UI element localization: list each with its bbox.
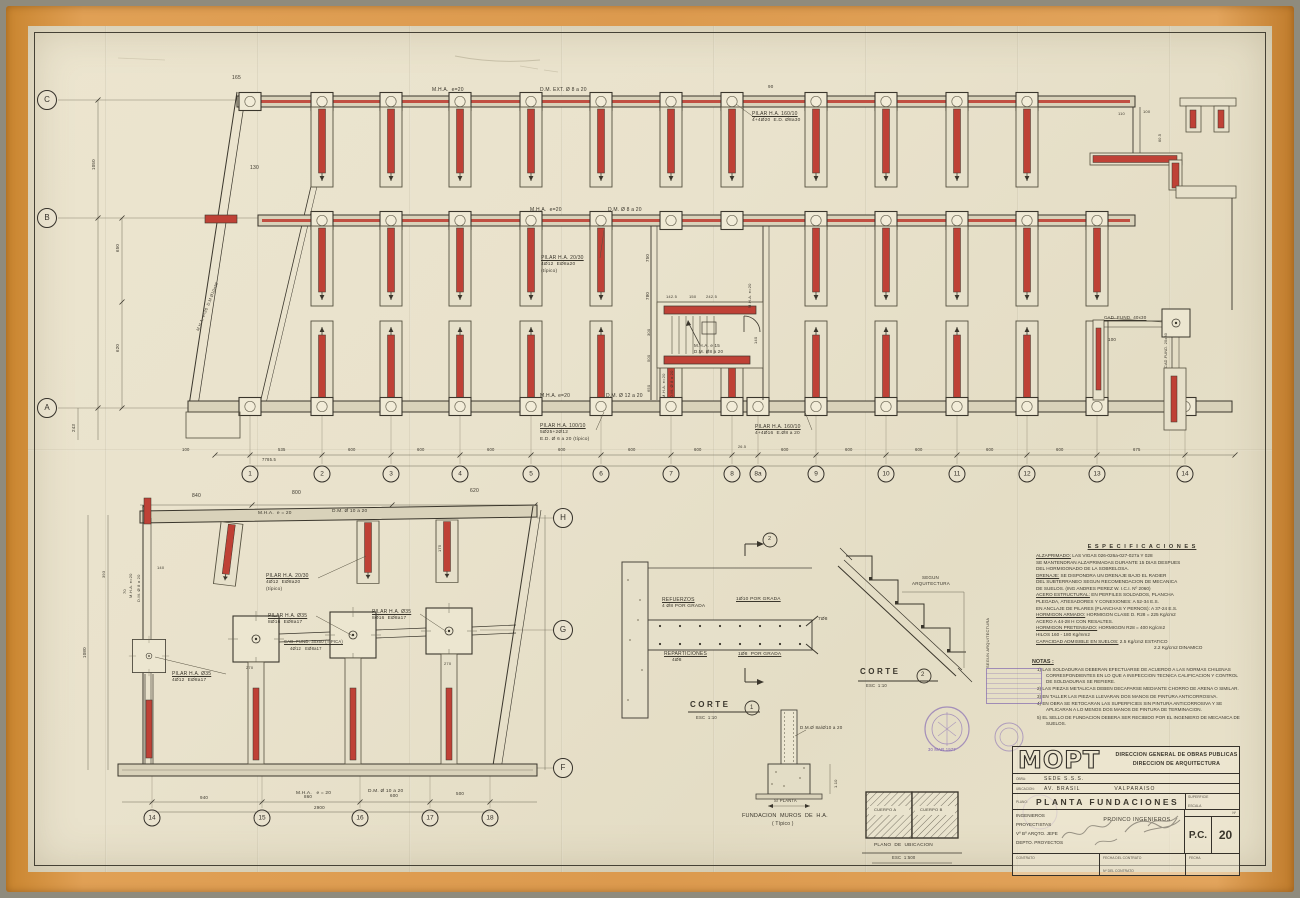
drawing-label: 110 [1118,112,1125,116]
drawing-label: CUERPO A [874,808,896,812]
nota-item: 1) LAS SOLDADURAS DEBERAN EFECTUARSE DE … [1032,667,1244,685]
grid-bubble-13: 13 [1089,466,1106,483]
spec-line: DEL SUBTERRANEO SEGUN RECOMENDACION DE M… [1036,579,1248,586]
drawing-label: PILAR H.A. 100/10 [540,424,586,429]
drawing-label: 600 [390,794,398,799]
right-side-foundations [1090,98,1236,430]
fecha-contrato-label: FECHA DEL CONTRATO [1103,856,1182,860]
drawing-label: M.H.A. e=20 [540,394,570,399]
drawing-label: 650 [647,385,651,392]
drawing-label: PILAR H.A. Ø35 [268,614,307,619]
drawing-label: 26.5 [738,446,746,450]
drawing-label: D.M. Ø 8 a 20 [137,575,141,603]
numero-label: Nº [1185,810,1239,817]
notas-block: NOTAS : 1) LAS SOLDADURAS DEBERAN EFECTU… [1032,659,1244,728]
drawing-label: 860 [304,795,312,800]
drawing-label: 600 [348,448,356,452]
drawing-label: 620 [470,489,479,494]
drawing-label: 300 [647,329,651,336]
drawing-label: CUERPO B [920,808,943,812]
notas-items: 1) LAS SOLDADURAS DEBERAN EFECTUARSE DE … [1032,667,1244,727]
corte-2-section [838,548,972,683]
drawing-label: 150 [689,295,696,299]
drawing-label: 5Ø25+2Ø12 [540,431,568,436]
drawing-label: 1.10 [834,779,838,788]
spec-line: DRENAJE: SE DISPONDRA UN DRENAJE BAJO EL… [1036,573,1248,580]
drawing-label: 100 [1143,110,1150,114]
plano-label: PLANO: [1016,800,1036,804]
drawing-label: 100 [182,448,190,452]
drawing-label: PILAR H.A. Ø35 [372,610,411,615]
rol-ingenieros: INGENIEROS [1016,812,1090,821]
footer-row: CONTRATO FECHA DEL CONTRATO Nº DEL CONTR… [1013,853,1239,875]
especificaciones-block: E S P E C I F I C A C I O N E S ALZAPRIM… [1036,544,1248,652]
obra-value: SEDE S.S.S. [1044,776,1084,782]
drawing-label: 600 [558,448,566,452]
drawing-label: PILAR H.A. 20/30 [266,574,309,579]
spec-line: 2.2 Kg/cm2 DINAMICO [1036,645,1248,652]
drawing-label: SEGUN [922,576,939,581]
drawing-label: S/ PLANTA [774,799,797,803]
spec-line: ACERO A 44-28 H CON RESALTES. [1036,619,1248,626]
drawing-label: 600 [628,448,636,452]
drawing-label: 1Ø10 POR GRADA [736,598,781,603]
grid-bubble-F: F [553,758,573,778]
drawing-label: 393 [102,571,106,578]
drawing-label: 2900 [314,806,325,811]
escala-label: ESCALA [1188,804,1237,808]
plano-title: PLANTA FUNDACIONES [1036,797,1179,807]
grid-bubble-5: 5 [523,466,540,483]
drawing-label: M.H.A. e=20 [432,88,464,93]
spec-line: DEL HORMIGONADO DE LA SOBRELOSA. [1036,566,1248,573]
rol-depto-proyectos: DEPTO. PROYECTOS [1016,839,1090,848]
pc-prefix: P.C. [1185,817,1212,853]
drawing-label: M.H.A. e = 20 [296,792,331,797]
rol-arqto-jefe: Vº Bº ARQTO. JEFE [1016,830,1090,839]
superficie-escala-cell: SUPERFICIE ESCALA [1185,794,1239,809]
grid-bubble-10: 10 [878,466,895,483]
drawing-label: 1 [750,705,754,711]
blueprint-sheet: 165130M.H.A. e=20D.M. EXT. Ø 8 a 2090PIL… [0,0,1300,898]
nota-item: 5) EL SELLO DE FUNDACION DEBERA SER RECI… [1032,715,1244,727]
nota-item: 2) LAS PIEZAS METALICAS DEBEN DECAPARSE … [1032,686,1244,692]
grid-bubble-15: 15 [254,810,271,827]
obra-row: OBRA: SEDE S.S.S. [1013,773,1239,783]
drawing-label: 4Ø12 EØ8a17 [290,647,322,651]
proinco-cell: PROINCO INGENIEROS [1090,810,1184,853]
drawing-label: ESC 1:10 [696,716,717,720]
drawing-label: 90 [768,85,773,90]
especificaciones-title: E S P E C I F I C A C I O N E S [1036,544,1248,550]
mopt-logo: MOPT [1016,748,1114,772]
spec-line: HORMIGON ARMADO: HORMIGON CLASE D. R28 =… [1036,612,1248,619]
drawing-label: M.H.A. e=20 [530,208,562,213]
grid-bubble-2: 2 [314,466,331,483]
grid-bubble-11: 11 [949,466,966,483]
drawing-label: 620 [116,344,121,352]
drawing-label: 500 [647,355,651,362]
drawing-label: 1050 [92,159,97,170]
drawing-label: 535 [278,448,286,452]
drawing-label: CAD.FUND. 20x30 [1165,333,1169,368]
sheet-number: 20 [1212,817,1239,853]
drawing-label: 100 [1108,338,1116,343]
nota-item: 4) EN OBRA SE RETOCARAN LAS SUPERFICIES … [1032,701,1244,713]
drawing-label: 140 [157,566,164,570]
drawing-label: (típico) [541,270,557,275]
drawing-label: M.H.A. e=20 [662,373,666,398]
grid-bubble-4: 4 [452,466,469,483]
drawing-label: PILAR H.A. 160/10 [755,425,801,430]
grid-bubble-12: 12 [1019,466,1036,483]
drawing-label: 8Ø16 EØ8a17 [268,621,302,626]
grid-bubble-17: 17 [422,810,439,827]
drawing-label: 500 [456,792,464,797]
signatures-row: INGENIEROS PROYECTISTAS Vº Bº ARQTO. JEF… [1013,809,1239,853]
drawing-label: 600 [487,448,495,452]
drawing-label: 60.5 [1159,134,1163,142]
drawing-label: M.H.A. e 15 [694,344,720,349]
drawing-label: 600 [986,448,994,452]
drawing-label: 780 [646,292,651,300]
ubicacion-row: UBICACION: AV. BRASIL VALPARAISO [1013,783,1239,793]
fecha-label: FECHA [1185,854,1239,875]
drawing-label: 600 [417,448,425,452]
drawing-label: D.M. Ø 10 a 20 [332,510,367,515]
drawing-label: 242.5 [706,295,717,299]
superficie-label: SUPERFICIE [1188,795,1237,799]
drawing-label: 600 [1056,448,1064,452]
drawing-label: 140 [754,337,758,344]
drawing-label: M.H.A. e=20 [748,283,752,308]
drawing-label: 165 [232,76,241,81]
drawing-label: E.D. Ø 6 a 20 (típico) [540,438,589,443]
drawing-label: 175 [438,545,442,552]
drawing-label: 7Ø8 [818,618,828,623]
drawing-label: 4+4Ø16 E.Ø8 a 20 [755,432,800,437]
drawing-label: 243 [72,424,77,432]
drawing-label: 70 [123,589,127,594]
drawing-label: CAD. FUND. 30x60 (TIPICA) [284,640,343,644]
grid-bubble-6: 6 [593,466,610,483]
notas-title: NOTAS : [1032,659,1244,665]
org-line-1: DIRECCION GENERAL DE OBRAS PUBLICAS [1114,751,1239,760]
drawing-label: PLANO DE UBICACION [874,844,933,849]
drawing-label: D.M. Ø8 a 20 [694,350,723,355]
drawing-label: D.M. Ø 8 a 20 [608,208,642,213]
drawing-label: D.M.Ø 8a/Ø10 a 20 [800,726,842,731]
red-wall-segment [205,215,237,223]
pencil-mark [455,56,540,61]
spec-line: ALZAPRIMADO: LAS VIGAS 026-026a-027-027a… [1036,553,1248,560]
drawing-label: CAD. FUND. 40x30 [1104,316,1146,321]
drawing-label: 4Ø12 EØ8a17 [172,679,206,684]
drawing-label: 600 [915,448,923,452]
grid-bubble-G: G [553,620,573,640]
spec-line: PLEGADA, ATIESADORES Y CONEXIONES: A 52-… [1036,599,1248,606]
spec-line: SE MANTENDRAN ALZAPRIMADAS DURANTE 15 DI… [1036,560,1248,567]
drawing-label: 4+4Ø20 E.D. Ø8a30 [752,119,801,124]
drawing-label: 1Ø8 POR GRADA [738,653,781,658]
upper-foundation-plan [58,92,1238,466]
grid-bubble-7: 7 [663,466,680,483]
ciudad-value: VALPARAISO [1114,786,1155,792]
drawing-label: 2 [768,537,771,543]
spec-line: HORMIGON PRETENSADO: HORMIGON R28 = 400 … [1036,625,1248,632]
drawing-label: 800 [292,491,301,496]
fechas-cell: FECHA DEL CONTRATO Nº DEL CONTRATO [1099,854,1185,875]
grid-bubble-16: 16 [352,810,369,827]
org-line-2: DIRECCION DE ARQUITECTURA [1114,760,1239,769]
lower-foundation-plan [88,498,553,812]
spec-line: EN ANCLAJE DE PILARES (PLANCHAS Y PERNOS… [1036,606,1248,613]
mopt-logo-text: MOPT [1018,748,1100,772]
grid-bubble-14: 14 [144,810,161,827]
nota-item: 3) EN TALLER LAS PIEZAS LLEVARAN DOS MAN… [1032,694,1244,700]
drawing-label: 7785.5 [262,458,276,462]
drawing-label: REFUERZOS [662,598,695,603]
location-plan [862,792,962,863]
drawing-label: PILAR H.A. 20/30 [541,256,584,261]
grid-bubble-H: H [553,508,573,528]
grid-bubble-8: 8 [724,466,741,483]
grid-bubble-C: C [37,90,57,110]
drawing-label: 940 [200,796,208,801]
drawing-label: 270 [444,662,451,666]
numero-contrato-label: Nº DEL CONTRATO [1103,869,1182,873]
drawing-label: (típico) [266,588,282,593]
drawing-label: PILAR H.A. 160/10 [752,112,798,117]
drawing-label: 675 [1133,448,1141,452]
grid-bubble-18: 18 [482,810,499,827]
spec-line: HILOS 160 - 180 Kg/mm2 [1036,632,1248,639]
drawing-label: CORTE [690,701,731,709]
drawing-label: 130 [250,166,259,171]
drawing-label: 840 [192,494,201,499]
drawing-label: 270 [246,666,253,670]
drawing-label: 4Ø8 [672,659,682,664]
drawing-label: 1080 [83,647,88,658]
sheet-number-cell: Nº P.C. 20 [1184,810,1239,853]
roles-cell: INGENIEROS PROYECTISTAS Vº Bº ARQTO. JEF… [1013,810,1090,853]
drawing-label: 4 Ø8 POR GRADA [662,605,705,610]
plano-row: PLANO: PLANTA FUNDACIONES SUPERFICIE ESC… [1013,793,1239,809]
especificaciones-lines: ALZAPRIMADO: LAS VIGAS 026-026a-027-027a… [1036,553,1248,652]
obra-label: OBRA: [1016,777,1044,781]
drawing-label: REPARTICIONES [664,652,707,657]
organization: DIRECCION GENERAL DE OBRAS PUBLICAS DIRE… [1114,751,1239,769]
grid-bubble-3: 3 [383,466,400,483]
drawing-label: 600 [845,448,853,452]
spec-line: DE SUELOS. (ING ANDRES PEREZ W. I.C.I. N… [1036,586,1248,593]
grid-bubble-A: A [37,398,57,418]
drawing-label: ( Típico ) [772,822,794,827]
spec-line: CAPACIDAD ADMISIBLE EN SUELOS: 2.5 Kg/cm… [1036,639,1248,646]
grid-bubble-8a: 8a [750,466,767,483]
drawing-label: 142.5 [666,295,677,299]
drawing-label: ESC 1:500 [892,856,915,860]
drawing-label: D.M. EXT. Ø 8 a 20 [540,88,587,93]
drawing-label: D.M. Ø 12 a 20 [606,394,643,399]
title-block: MOPT DIRECCION GENERAL DE OBRAS PUBLICAS… [1012,746,1240,876]
grid-bubble-B: B [37,208,57,228]
drawing-label: ARQUITECTURA [912,582,950,587]
rect-stamp [986,668,1042,704]
drawing-label: PILAR H.A. Ø35 [172,672,211,677]
drawing-label: M.H.A. e = 20 [258,512,292,517]
drawing-label: CORTE [860,668,901,676]
drawing-label: 4Ø12 EØ8a20 [266,581,300,586]
drawing-label: 2 [921,672,925,678]
drawing-label: D.M. Ø 8 a 20 [670,371,674,399]
drawing-label: 4Ø12 EØ8a20 [541,263,575,268]
contrato-label: CONTRATO [1013,854,1099,875]
drawing-label: 8Ø16 EØ8a17 [372,617,406,622]
corte-1-section [622,533,818,718]
drawing-label: 600 [781,448,789,452]
grid-bubble-14: 14 [1177,466,1194,483]
drawing-label: 650 [116,244,121,252]
drawing-label: FUNDACION MUROS DE H.A. [742,814,828,820]
drawing-label: ESC 1:10 [866,684,887,688]
drawing-label: 600 [694,448,702,452]
spec-line: ACERO ESTRUCTURAL: EN PERFILES SOLDADOS,… [1036,592,1248,599]
drawing-label: 30 MAR 1977 [928,748,956,752]
drawing-label: M.H.A. e=20 [129,573,133,598]
rol-proyectistas: PROYECTISTAS [1016,821,1090,830]
drawing-label: 750 [646,254,651,262]
grid-bubble-1: 1 [242,466,259,483]
ubicacion-label: UBICACION: [1016,787,1044,791]
grid-bubble-9: 9 [808,466,825,483]
ubicacion-value: AV. BRASIL [1044,786,1080,792]
drawing-label: SEGUN ARQUITECTURA [986,618,990,668]
